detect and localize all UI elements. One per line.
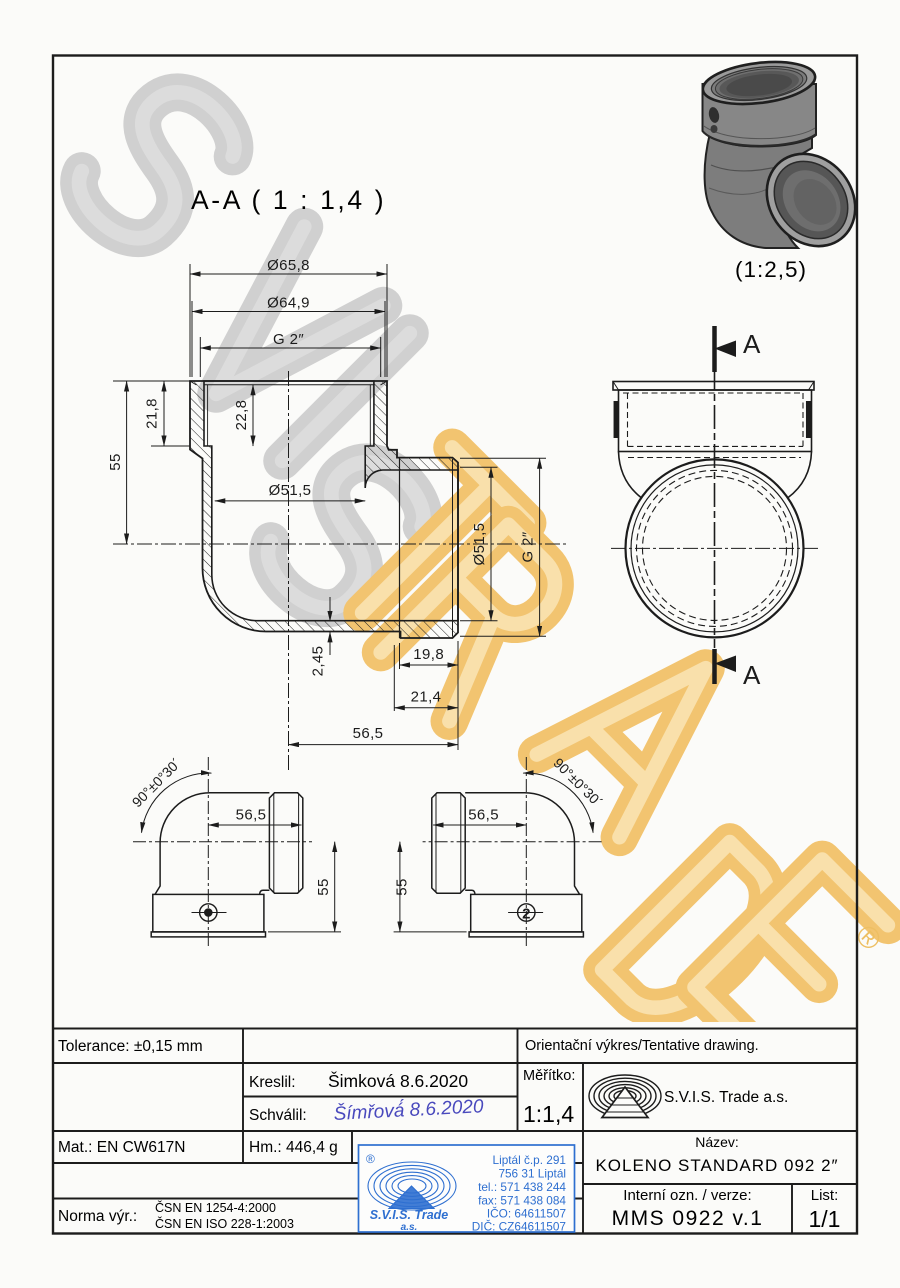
svg-text:2,45: 2,45: [310, 646, 327, 677]
svg-text:55: 55: [107, 453, 124, 471]
svg-text:55: 55: [315, 878, 332, 896]
svg-text:Orientační výkres/Tentative dr: Orientační výkres/Tentative drawing.: [525, 1038, 759, 1054]
svg-text:IČO: 64611507: IČO: 64611507: [487, 1207, 566, 1221]
svg-text:Ø51,5: Ø51,5: [269, 482, 312, 499]
svg-text:56,5: 56,5: [468, 807, 499, 824]
svg-text:ČSN EN 1254-4:2000: ČSN EN 1254-4:2000: [155, 1200, 276, 1215]
svg-text:Ø65,8: Ø65,8: [267, 257, 310, 274]
svg-text:®: ®: [366, 1152, 375, 1166]
svg-text:G 2″: G 2″: [273, 331, 304, 348]
svg-text:tel.: 571 438 244: tel.: 571 438 244: [478, 1180, 566, 1194]
svg-text:56,5: 56,5: [353, 725, 384, 742]
svg-text:KOLENO STANDARD 092 2″: KOLENO STANDARD 092 2″: [595, 1156, 838, 1175]
svg-text:Kreslil:: Kreslil:: [249, 1074, 296, 1091]
svg-text:Schválil:: Schválil:: [249, 1107, 307, 1124]
svg-text:G 2″: G 2″: [520, 531, 537, 562]
svg-text:756 31 Liptál: 756 31 Liptál: [498, 1167, 566, 1181]
svg-text:List:: List:: [811, 1187, 839, 1204]
svg-text:(1:2,5): (1:2,5): [735, 257, 807, 282]
svg-text:A-A ( 1 : 1,4 ): A-A ( 1 : 1,4 ): [191, 185, 386, 215]
svg-text:Šimková 8.6.2020: Šimková 8.6.2020: [328, 1070, 468, 1091]
svg-text:S.V.I.S. Trade: S.V.I.S. Trade: [370, 1208, 449, 1222]
svg-text:Ø51,5: Ø51,5: [471, 523, 488, 566]
svg-text:Měřítko:: Měřítko:: [523, 1068, 575, 1084]
svg-text:fax: 571 438 084: fax: 571 438 084: [478, 1194, 566, 1208]
svg-text:Liptál č.p. 291: Liptál č.p. 291: [493, 1153, 566, 1167]
svg-text:MMS 0922 v.1: MMS 0922 v.1: [612, 1207, 764, 1230]
svg-text:DIČ: CZ64611507: DIČ: CZ64611507: [472, 1220, 566, 1234]
svg-text:Hm.: 446,4 g: Hm.: 446,4 g: [249, 1139, 338, 1156]
svg-text:Název:: Název:: [695, 1134, 739, 1150]
svg-text:21,8: 21,8: [144, 398, 161, 429]
svg-text:1/1: 1/1: [809, 1206, 841, 1232]
svg-text:A: A: [743, 329, 761, 359]
svg-text:Norma výr.:: Norma výr.:: [58, 1208, 137, 1225]
svg-text:2: 2: [522, 906, 530, 923]
svg-text:Mat.: EN CW617N: Mat.: EN CW617N: [58, 1139, 185, 1156]
svg-text:Tolerance: ±0,15 mm: Tolerance: ±0,15 mm: [58, 1038, 203, 1055]
svg-text:55: 55: [394, 878, 411, 896]
svg-text:ČSN EN ISO 228-1:2003: ČSN EN ISO 228-1:2003: [155, 1216, 294, 1231]
svg-text:a.s.: a.s.: [401, 1222, 418, 1233]
svg-text:19,8: 19,8: [413, 646, 444, 663]
svg-text:Ø64,9: Ø64,9: [267, 295, 310, 312]
svg-text:A: A: [743, 660, 761, 690]
svg-text:22,8: 22,8: [233, 400, 250, 431]
svg-text:Interní ozn. / verze:: Interní ozn. / verze:: [623, 1187, 751, 1204]
svg-text:S.V.I.S. Trade a.s.: S.V.I.S. Trade a.s.: [664, 1089, 788, 1106]
svg-text:56,5: 56,5: [236, 807, 267, 824]
svg-text:21,4: 21,4: [411, 689, 442, 706]
svg-text:1:1,4: 1:1,4: [523, 1101, 574, 1127]
